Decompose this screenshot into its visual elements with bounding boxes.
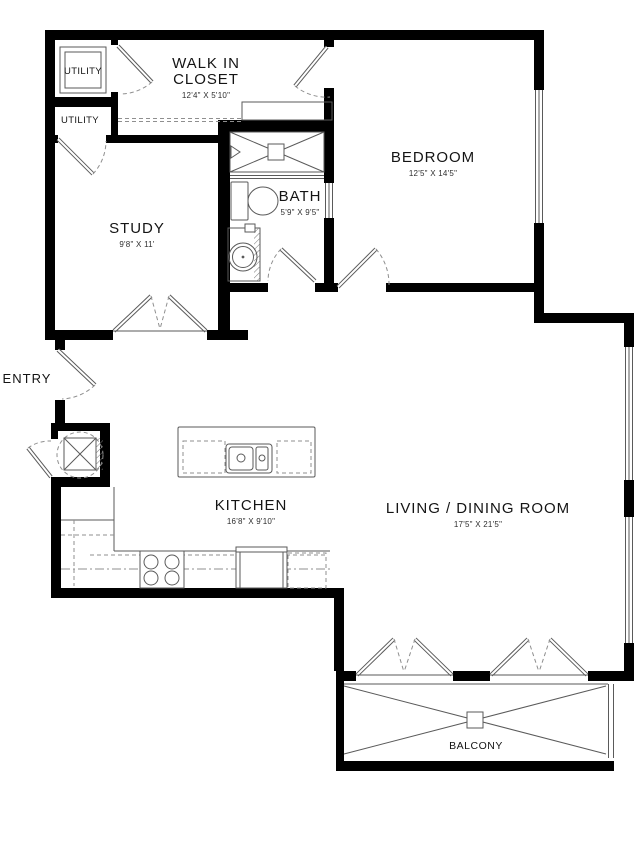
wall-study-top-2 [106,135,218,143]
kitchen-island [178,427,315,477]
shower-drain [268,144,284,160]
windows [326,90,633,643]
room-label-balcony: BALCONY [445,740,507,752]
wall-living-bottom-3 [588,671,634,681]
bath-wall-recess [326,183,333,218]
wall-closet-bedroom-3 [324,218,334,292]
room-label-bath: BATH 5'9" X 9'5" [279,189,322,217]
wall-laundry-left-stub [51,431,58,439]
room-dimensions: 12'4" X 5'10" [159,91,253,100]
wall-living-bottom-2 [453,671,490,681]
living-window-lower [626,517,633,643]
wall-left-lower [51,487,61,588]
wall-utility-right-1 [111,40,118,45]
wall-bedroom-right-lower [534,223,544,323]
wall-left-upper [45,40,55,340]
utility-2-door [58,139,106,174]
room-dimensions: 5'9" X 9'5" [279,208,322,217]
shower-head-icon [231,146,240,158]
wall-laundry-bottom [51,477,110,487]
room-name: STUDY [109,221,165,237]
floor-plan-drawing [0,0,644,854]
room-name: UTILITY [61,115,99,126]
vanity-fixture [245,224,255,232]
toilet-bowl [248,187,278,215]
room-label-study: STUDY 9'8" X 11' [109,221,165,249]
room-name: LIVING / DINING ROOM [386,501,570,517]
shower [230,132,324,179]
balcony-french-doors-right [490,639,588,675]
room-name: KITCHEN [215,498,288,514]
vanity-sink [228,224,260,281]
room-label-entry: ENTRY [2,371,51,386]
room-name: BEDROOM [391,150,475,166]
balcony-french-doors-left [356,639,453,675]
wall-bath-bottom-2 [315,283,338,292]
room-dimensions: 16'8" X 9'10" [215,517,288,526]
wall-nook-stub [207,330,248,340]
washer-dryer-icon [57,432,103,478]
walls [45,30,634,771]
laundry-door [28,441,51,477]
balcony-railing [609,684,614,758]
room-label-utility-bottom: UTILITY [61,115,99,126]
counter-edge [61,487,330,551]
wall-study-bottom [45,330,113,340]
wall-kitchen-right [334,598,344,671]
room-name: WALK IN CLOSET [159,56,253,88]
dishwasher-icon [236,547,287,588]
room-dimensions: 12'5" X 14'5" [391,169,475,178]
wall-living-bottom-1 [336,671,356,681]
basin-drain [242,256,245,259]
entry-door [58,350,95,399]
wall-right-1 [624,323,634,347]
wall-top [45,30,544,40]
bedroom-window [536,90,543,223]
wall-bedroom-right-upper [534,40,544,90]
toilet-icon [231,182,278,220]
room-name: BATH [279,189,322,205]
toilet-tank [231,182,248,220]
wall-utility-divider [45,97,118,107]
wall-entry-lower [55,400,65,423]
room-label-utility-top: UTILITY [64,66,102,77]
room-label-walk-in-closet: WALK IN CLOSET 12'4" X 5'10" [159,56,253,100]
stove-icon [140,551,184,588]
living-window-upper [626,347,633,480]
wall-bath-bottom-1 [218,283,268,292]
room-dimensions: 9'8" X 11' [109,240,165,249]
wall-study-top-1 [45,135,58,143]
room-label-bedroom: BEDROOM 12'5" X 14'5" [391,150,475,178]
wall-shower-top [218,120,332,132]
closet-details [118,102,332,122]
study-french-doors [113,296,207,331]
wall-kitchen-bottom [51,588,344,598]
utility-door [118,46,152,94]
room-name: BALCONY [449,740,503,752]
wall-balcony-bottom [336,761,614,771]
room-label-living-dining: LIVING / DINING ROOM 17'5" X 21'5" [386,501,570,529]
refrigerator-icon [288,553,326,588]
wall-laundry-top [51,423,110,431]
wall-balcony-left [336,681,344,771]
closet-shelf [242,102,332,120]
room-label-kitchen: KITCHEN 16'8" X 9'10" [215,498,288,526]
wall-step-top [534,313,634,323]
bath-door [268,249,315,281]
room-name: UTILITY [64,66,102,77]
wall-entry-upper [55,340,65,350]
balcony-cross-center [467,712,483,728]
shower-curb [230,176,324,179]
floor-plan: UTILITY UTILITY WALK IN CLOSET 12'4" X 5… [0,0,644,854]
room-name: ENTRY [2,371,51,386]
bedroom-door [338,249,389,287]
kitchen-counter [61,487,330,588]
room-dimensions: 17'5" X 21'5" [386,520,570,529]
wall-bedroom-bottom [386,283,534,292]
wall-right-2 [624,480,634,517]
